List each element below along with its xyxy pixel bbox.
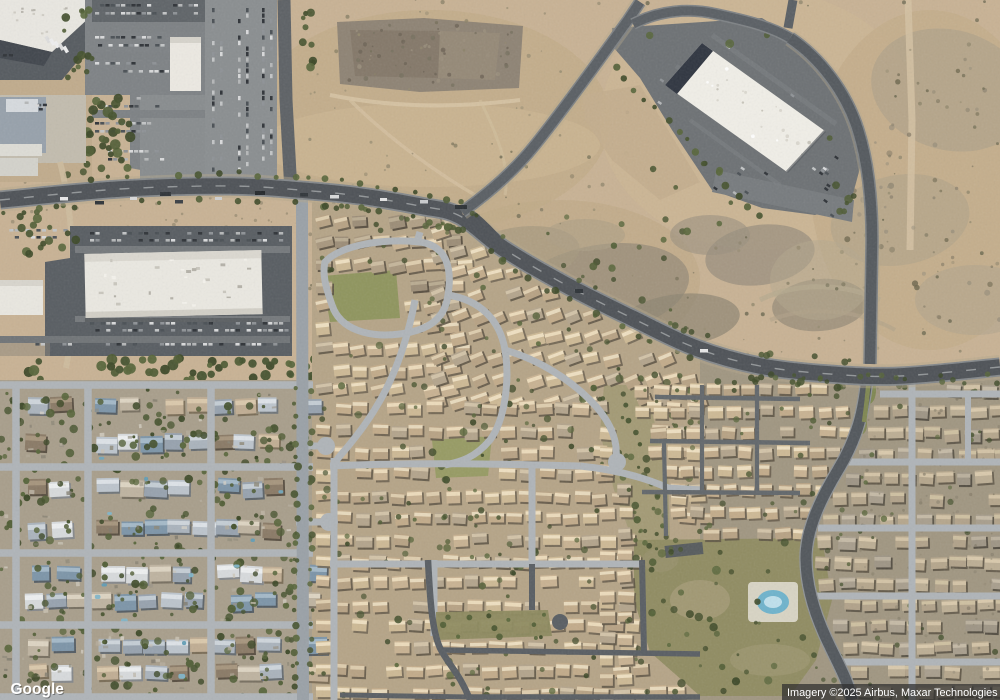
svg-text:Google: Google <box>11 681 65 698</box>
svg-text:Imagery ©2025 Airbus, Maxar Te: Imagery ©2025 Airbus, Maxar Technologies <box>787 687 998 699</box>
